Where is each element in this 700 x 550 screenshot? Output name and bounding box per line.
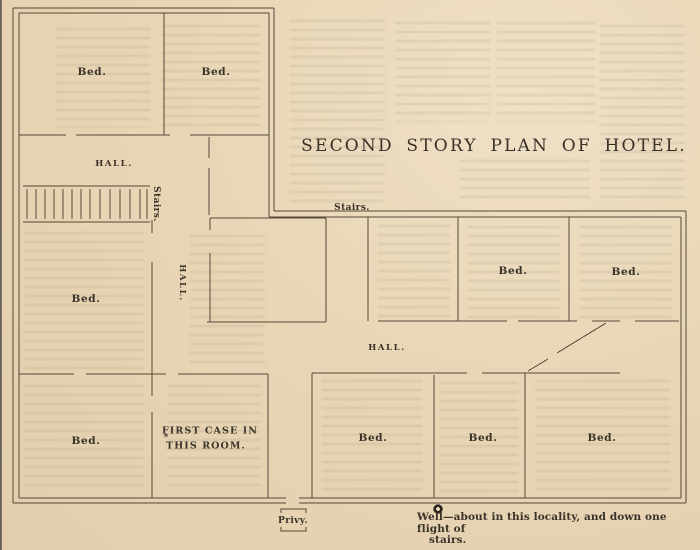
label-hall-right: HALL.	[368, 343, 406, 353]
label-hall-upper-left: HALL.	[95, 159, 133, 169]
door-swing-diagonal	[528, 323, 606, 371]
label-bed-right-1: Bed.	[499, 265, 528, 277]
label-bed-right-2: Bed.	[612, 266, 641, 278]
label-stairs-top: Stairs.	[334, 203, 370, 213]
well-caption-line2: stairs.	[429, 535, 693, 547]
label-first-case-line1: FIRST CASE IN	[162, 426, 258, 437]
label-first-case-mark: *	[164, 433, 169, 443]
well-caption-line1: Well—about in this locality, and down on…	[417, 512, 693, 535]
label-bed-top-right: Bed.	[202, 66, 231, 78]
label-stairs-left-vertical: Stairs.	[151, 186, 161, 222]
label-bed-bottom-2: Bed.	[469, 432, 498, 444]
right-wing-walls	[312, 217, 679, 498]
scanned-floor-plan-page: Bed.Bed.HALL.Stairs.Bed.HALL.Stairs.Bed.…	[0, 0, 700, 550]
label-privy: Privy.	[278, 516, 308, 526]
well-caption: Well—about in this locality, and down on…	[417, 512, 693, 547]
label-bed-top-left: Bed.	[78, 66, 107, 78]
outer-walls	[13, 8, 686, 503]
page-title: SECOND STORY PLAN OF HOTEL.	[301, 136, 687, 156]
label-bed-bottom-1: Bed.	[359, 432, 388, 444]
label-bed-bottom-left: Bed.	[72, 435, 101, 447]
label-bed-mid-left: Bed.	[72, 293, 101, 305]
staircase	[23, 186, 150, 222]
label-bed-bottom-3: Bed.	[588, 432, 617, 444]
floor-plan-drawing	[0, 0, 700, 550]
label-hall-vertical: HALL.	[177, 264, 187, 302]
label-first-case-line2: THIS ROOM.	[166, 441, 246, 452]
